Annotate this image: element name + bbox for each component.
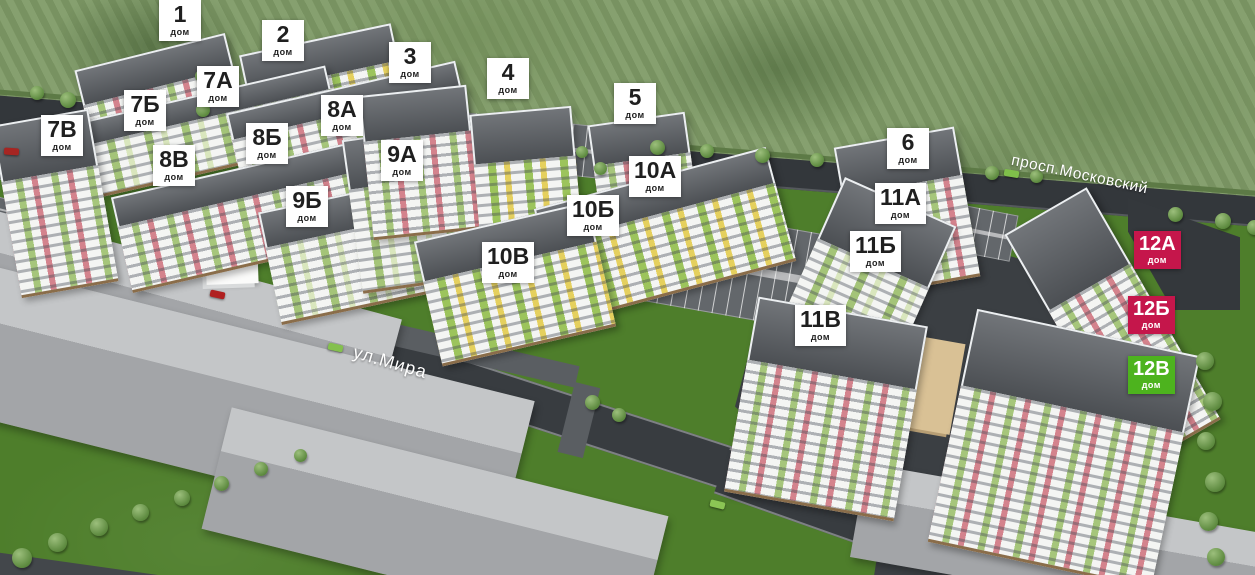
building-number: 7В (46, 118, 78, 141)
building-number: 8В (158, 148, 190, 171)
tree (294, 449, 307, 462)
tree (650, 140, 665, 155)
tree (612, 408, 626, 422)
tree (755, 148, 770, 163)
tree (1205, 472, 1225, 492)
dom-caption: дом (892, 155, 924, 165)
dom-caption: дом (394, 69, 426, 79)
building-number: 8Б (251, 126, 283, 149)
dom-caption: дом (291, 213, 323, 223)
dom-caption: дом (572, 222, 614, 232)
building-label-12А[interactable]: 12Адом (1134, 231, 1181, 269)
dom-caption: дом (251, 150, 283, 160)
building-label-9А[interactable]: 9Адом (381, 140, 423, 181)
building-label-8Б[interactable]: 8Бдом (246, 123, 288, 164)
tree (1199, 512, 1218, 531)
tree (1207, 548, 1225, 566)
tree (1196, 352, 1214, 370)
dom-caption: дом (386, 167, 418, 177)
building-number: 12В (1133, 359, 1170, 379)
building-label-7А[interactable]: 7Адом (197, 66, 239, 107)
tree (700, 144, 714, 158)
building-number: 7А (202, 69, 234, 92)
dom-caption: дом (492, 85, 524, 95)
tree (132, 504, 149, 521)
dom-caption: дом (855, 258, 896, 268)
building-label-12В[interactable]: 12Вдом (1128, 356, 1175, 394)
tree (1247, 220, 1255, 235)
tree (174, 490, 190, 506)
building-number: 10А (634, 159, 676, 182)
building-label-10В[interactable]: 10Вдом (482, 242, 534, 283)
building-number: 12Б (1133, 299, 1170, 319)
building-number: 3 (394, 45, 426, 68)
tree (1197, 432, 1215, 450)
tree (90, 518, 108, 536)
building-number: 4 (492, 61, 524, 84)
building-label-11Б[interactable]: 11Бдом (850, 231, 901, 272)
dom-caption: дом (1133, 320, 1170, 330)
tree (254, 462, 268, 476)
building-dom-12v[interactable] (928, 309, 1201, 575)
building-number: 9А (386, 143, 418, 166)
building-label-12Б[interactable]: 12Бдом (1128, 296, 1175, 334)
tree (214, 476, 229, 491)
building-number: 9Б (291, 189, 323, 212)
dom-caption: дом (487, 269, 529, 279)
building-facade (1, 164, 118, 298)
tree (12, 548, 32, 568)
dom-caption: дом (326, 122, 358, 132)
building-number: 10Б (572, 198, 614, 221)
tree (60, 92, 76, 108)
tree (576, 146, 588, 158)
dom-caption: дом (800, 332, 841, 342)
building-label-11В[interactable]: 11Вдом (795, 305, 846, 346)
building-label-2[interactable]: 2дом (262, 20, 304, 61)
building-label-5[interactable]: 5дом (614, 83, 656, 124)
building-number: 8А (326, 98, 358, 121)
building-number: 7Б (129, 93, 161, 116)
building-label-10Б[interactable]: 10Бдом (567, 195, 619, 236)
building-label-4[interactable]: 4дом (487, 58, 529, 99)
building-label-8В[interactable]: 8Вдом (153, 145, 195, 186)
building-number: 11Б (855, 234, 896, 257)
building-label-11А[interactable]: 11Адом (875, 183, 926, 224)
dom-caption: дом (880, 210, 921, 220)
building-label-7Б[interactable]: 7Бдом (124, 90, 166, 131)
tree (585, 395, 600, 410)
building-label-9Б[interactable]: 9Бдом (286, 186, 328, 227)
dom-caption: дом (158, 172, 190, 182)
dom-caption: дом (267, 47, 299, 57)
building-label-8А[interactable]: 8Адом (321, 95, 363, 136)
building-label-1[interactable]: 1дом (159, 0, 201, 41)
building-number: 11В (800, 308, 841, 331)
building-number: 2 (267, 23, 299, 46)
car (4, 147, 19, 155)
masterplan-map: ул.Мира просп.Московский 1дом2дом3дом4до… (0, 0, 1255, 575)
building-label-10А[interactable]: 10Адом (629, 156, 681, 197)
building-number: 12А (1139, 234, 1176, 254)
tree (1215, 213, 1231, 229)
dom-caption: дом (1139, 255, 1176, 265)
tree (30, 86, 44, 100)
building-number: 6 (892, 131, 924, 154)
building-number: 10В (487, 245, 529, 268)
tree (810, 153, 824, 167)
dom-caption: дом (619, 110, 651, 120)
building-number: 5 (619, 86, 651, 109)
dom-caption: дом (129, 117, 161, 127)
tree (985, 166, 999, 180)
dom-caption: дом (634, 183, 676, 193)
building-label-7В[interactable]: 7Вдом (41, 115, 83, 156)
building-number: 1 (164, 3, 196, 26)
building-label-3[interactable]: 3дом (389, 42, 431, 83)
tree (48, 533, 67, 552)
tree (594, 162, 607, 175)
building-label-6[interactable]: 6дом (887, 128, 929, 169)
dom-caption: дом (1133, 380, 1170, 390)
tree (1203, 392, 1222, 411)
tree (1168, 207, 1183, 222)
dom-caption: дом (46, 142, 78, 152)
dom-caption: дом (202, 93, 234, 103)
building-number: 11А (880, 186, 921, 209)
dom-caption: дом (164, 27, 196, 37)
